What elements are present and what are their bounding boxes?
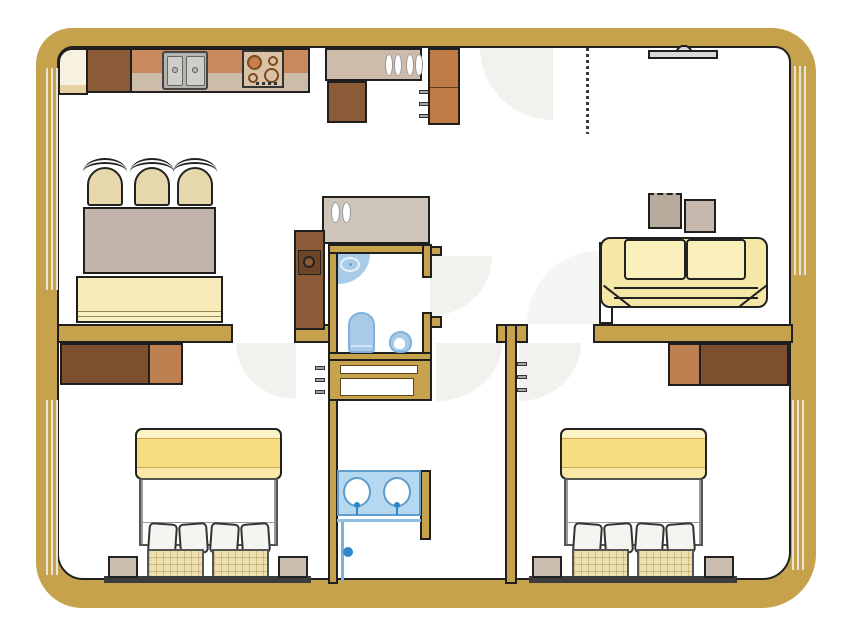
- hinge-tick: [517, 375, 527, 379]
- sink-drain: [172, 67, 178, 73]
- appliance-cabinet: [294, 230, 325, 330]
- dashed-divider: [586, 48, 589, 134]
- side-table: [648, 193, 682, 229]
- dresser-left-bedroom-side: [148, 343, 183, 385]
- kitchen-cabinet-lower: [327, 81, 367, 123]
- side-table: [684, 199, 716, 233]
- cabinet-divider: [430, 87, 458, 88]
- closet-shelf: [340, 378, 414, 396]
- bidet: [389, 331, 412, 353]
- corner-counter-strip: [60, 85, 86, 93]
- basin-drain: [349, 263, 352, 266]
- burner: [247, 55, 262, 70]
- window-left-top: [46, 68, 58, 290]
- closet-shelf: [340, 365, 418, 374]
- sofa-cushion: [686, 239, 746, 280]
- sink-drain: [192, 67, 198, 73]
- dining-chair: [177, 167, 213, 206]
- wall-bathroom-top: [328, 244, 432, 254]
- vanity: [337, 470, 421, 516]
- counter-dish: [342, 202, 351, 223]
- corner-counter: [58, 48, 88, 95]
- window-left-bottom: [46, 400, 58, 575]
- stove-knob: [268, 82, 271, 85]
- linen-closet: [328, 359, 432, 401]
- bed-left-canopy: [135, 428, 282, 480]
- wall-dining-bedroom: [57, 324, 233, 343]
- wall-bathroom-jamb-upper: [430, 246, 442, 256]
- bed-right-canopy: [560, 428, 707, 480]
- wall-bathroom-jamb-lower: [430, 316, 442, 328]
- toilet: [348, 312, 375, 353]
- vanity-edge-line: [337, 519, 421, 522]
- hinge-tick: [315, 378, 325, 382]
- sofa: [600, 237, 768, 308]
- stove: [242, 50, 284, 88]
- wall-hallway-bedroom-right: [505, 324, 517, 584]
- dresser-left-bedroom: [60, 343, 150, 385]
- appliance-door: [298, 250, 321, 275]
- dish: [406, 54, 414, 76]
- hinge-tick: [315, 390, 325, 394]
- vanity-faucet-stem: [356, 508, 358, 515]
- dish: [385, 54, 393, 76]
- dining-bench: [76, 276, 223, 323]
- hinge-tick: [315, 366, 325, 370]
- sofa-seat-line: [614, 287, 758, 289]
- sofa-cushion: [624, 239, 686, 280]
- vanity-faucet-stem: [396, 508, 398, 515]
- dresser-right-bedroom-side: [668, 343, 701, 386]
- floor-plan: [0, 0, 853, 640]
- dining-chair: [134, 167, 170, 206]
- stove-knob: [256, 82, 259, 85]
- wall-vanity-partition: [420, 470, 431, 540]
- wall-middle-left: [328, 244, 338, 584]
- appliance-knob-icon: [303, 256, 315, 268]
- window-right-bottom: [792, 400, 804, 570]
- tall-cabinet: [428, 48, 460, 125]
- shower-door-handle: [343, 547, 353, 557]
- nightstand: [108, 556, 138, 578]
- dresser-right-bedroom: [699, 343, 789, 386]
- hinge-tick: [517, 388, 527, 392]
- stove-knob: [274, 82, 277, 85]
- kitchen-sink: [162, 51, 208, 90]
- wall-living-bedroom: [593, 324, 793, 343]
- dish: [394, 54, 402, 76]
- toilet-seat-line: [351, 345, 372, 347]
- stove-knob: [262, 82, 265, 85]
- kitchen-cabinet: [86, 48, 132, 93]
- burner: [264, 68, 279, 83]
- dining-table: [83, 207, 216, 274]
- nightstand: [278, 556, 308, 578]
- hinge-tick: [517, 362, 527, 366]
- bidet-bowl: [394, 338, 405, 349]
- nightstand: [704, 556, 734, 578]
- nightstand: [532, 556, 562, 578]
- counter-dish: [331, 202, 340, 223]
- burner: [268, 56, 278, 66]
- sofa-seat-line: [614, 297, 758, 299]
- dining-chair: [87, 167, 123, 206]
- dish: [415, 54, 423, 76]
- tv: [648, 50, 718, 59]
- window-right-top: [794, 66, 806, 275]
